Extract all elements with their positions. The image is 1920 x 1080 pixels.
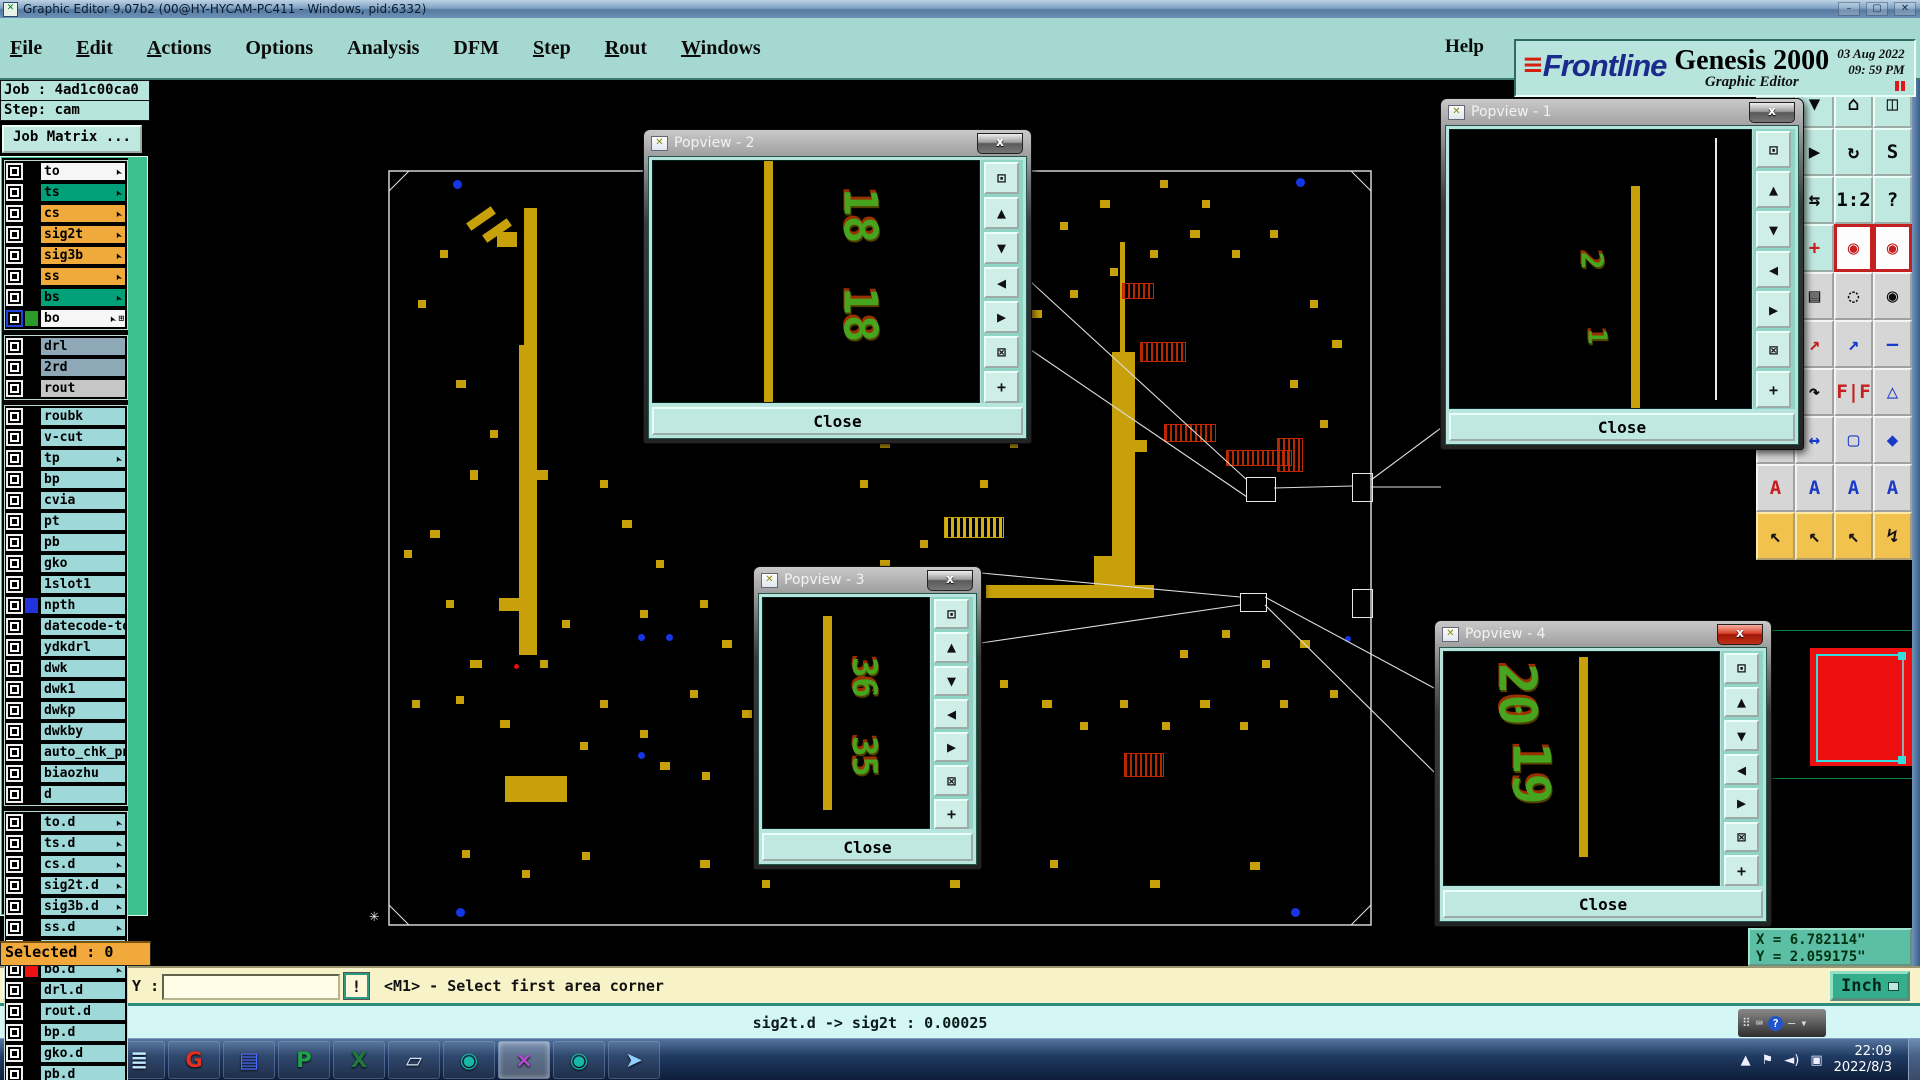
popview-tool-nudge-up[interactable]: ▲ — [934, 632, 969, 662]
layer-row-bp[interactable]: bp — [5, 469, 127, 490]
layer-name[interactable]: bp.d — [40, 1023, 126, 1042]
layer-checkbox[interactable] — [6, 982, 23, 999]
layer-name[interactable]: dwk — [40, 659, 126, 678]
popview-close-icon[interactable]: x — [977, 133, 1023, 154]
popview-tool-nudge-up[interactable]: ▲ — [984, 197, 1019, 229]
language-bar[interactable]: ⠿ ⌨ ? – ▾ — [1738, 1009, 1826, 1037]
layer-checkbox[interactable] — [6, 380, 23, 397]
layer-row-v-cut[interactable]: v-cut — [5, 427, 127, 448]
layer-checkbox[interactable] — [6, 681, 23, 698]
layer-color-swatch — [25, 472, 38, 487]
layer-name[interactable]: rout.d — [40, 1002, 126, 1021]
tool-scale-1-2[interactable]: 1:2 — [1834, 176, 1873, 224]
popview-tool-nudge-left[interactable]: ◀ — [1724, 754, 1759, 785]
popview-icon: ✕ — [761, 573, 778, 588]
popview-tool-popout[interactable]: ⊡ — [1756, 131, 1791, 168]
tool-net-2[interactable]: ◉ — [1873, 224, 1912, 272]
tool-cursor-1[interactable]: ↖ — [1756, 512, 1795, 560]
layer-checkbox[interactable] — [6, 184, 23, 201]
popview-tool-nudge-right[interactable]: ▶ — [1724, 788, 1759, 819]
popview-canvas[interactable]: 2019 — [1443, 651, 1720, 886]
layer-row-ss[interactable]: ss➤ — [5, 266, 127, 287]
tray-network-icon[interactable]: ▣ — [1810, 1053, 1822, 1068]
layer-name[interactable]: bo➤⊞ — [40, 309, 126, 328]
layer-name[interactable]: bp — [40, 470, 126, 489]
layer-color-swatch — [25, 381, 38, 396]
layer-checkbox[interactable] — [6, 555, 23, 572]
menu-actions[interactable]: Actions — [147, 37, 211, 60]
layer-color-swatch — [25, 248, 38, 263]
layer-checkbox[interactable] — [6, 639, 23, 656]
taskbar-floppy-app[interactable]: ▤ — [223, 1041, 275, 1079]
layer-checkbox[interactable] — [6, 919, 23, 936]
layer-name[interactable]: pb — [40, 533, 126, 552]
layer-checkbox[interactable] — [6, 226, 23, 243]
layer-name[interactable]: npth — [40, 596, 126, 615]
step-label: Step: cam — [0, 100, 150, 121]
xy-input[interactable] — [162, 974, 340, 1000]
taskbar-excel-app[interactable]: X — [333, 1041, 385, 1079]
layer-row-to.d[interactable]: to.d➤ — [5, 812, 127, 833]
popview-trace — [764, 161, 773, 402]
help-icon[interactable]: ? — [1768, 1016, 1783, 1031]
taskbar-p-app[interactable]: P — [278, 1041, 330, 1079]
layer-row-ts.d[interactable]: ts.d➤ — [5, 833, 127, 854]
layer-row-to[interactable]: to➤ — [5, 161, 127, 182]
pause-icon — [1895, 81, 1905, 91]
layer-row-biaozhu[interactable]: biaozhu — [5, 763, 127, 784]
layer-arrow-icon: ➤ — [112, 921, 126, 934]
layer-checkbox[interactable] — [6, 450, 23, 467]
layer-name[interactable]: cs➤ — [40, 204, 126, 223]
layer-name[interactable]: tp➤ — [40, 449, 126, 468]
layer-color-swatch — [25, 493, 38, 508]
tool-select-dot[interactable]: ◉ — [1873, 272, 1912, 320]
layer-name[interactable]: dwk1 — [40, 680, 126, 699]
layer-color-swatch — [25, 724, 38, 739]
layer-row-cs.d[interactable]: cs.d➤ — [5, 854, 127, 875]
popview-tool-nudge-down[interactable]: ▼ — [984, 232, 1019, 264]
layer-name[interactable]: cvia — [40, 491, 126, 510]
layer-row-gko[interactable]: gko — [5, 553, 127, 574]
layer-row-ts[interactable]: ts➤ — [5, 182, 127, 203]
popview-close-button[interactable]: Close — [1449, 413, 1795, 441]
popview-number: 1 — [1585, 328, 1608, 344]
taskbar-cam-app-1[interactable]: ◉ — [443, 1041, 495, 1079]
tool-shape-box[interactable]: ▢ — [1834, 416, 1873, 464]
layer-name[interactable]: ydkdrl — [40, 638, 126, 657]
popview-canvas[interactable]: 21 — [1449, 129, 1752, 409]
system-tray: ▲⚑◄)▣ 22:09 2022/8/3 — [1741, 1039, 1892, 1080]
popview-tool-nudge-left[interactable]: ◀ — [1756, 251, 1791, 288]
job-matrix-button[interactable]: Job Matrix ... — [2, 125, 142, 153]
layer-checkbox[interactable] — [6, 898, 23, 915]
layer-row-npth[interactable]: npth — [5, 595, 127, 616]
tool-peak-blue-1[interactable]: A — [1795, 464, 1834, 512]
minimize-button[interactable]: – — [1838, 2, 1860, 16]
popview-tool-popout[interactable]: ⊡ — [1724, 653, 1759, 684]
maximize-button[interactable]: ▢ — [1866, 2, 1888, 16]
layer-row-rout[interactable]: rout — [5, 378, 127, 399]
layer-color-swatch — [25, 836, 38, 851]
layer-row-drl[interactable]: drl — [5, 336, 127, 357]
layer-arrow-icon: ➤ — [112, 879, 126, 892]
date-label: 03 Aug 2022 — [1837, 46, 1904, 62]
popview-canvas[interactable]: 1818 — [652, 160, 980, 403]
layer-name[interactable]: datecode-to — [40, 617, 126, 636]
popview-tool-nudge-down[interactable]: ▼ — [934, 666, 969, 696]
layer-checkbox[interactable] — [6, 492, 23, 509]
popview-tool-zoom-fit[interactable]: ⊠ — [1724, 822, 1759, 853]
layer-name[interactable]: rout — [40, 379, 126, 398]
layer-name[interactable]: gko.d — [40, 1044, 126, 1063]
layer-color-swatch — [25, 311, 38, 326]
layer-row-dwkby[interactable]: dwkby — [5, 721, 127, 742]
layer-arrow-icon: ➤ — [112, 858, 126, 871]
layer-checkbox[interactable] — [6, 359, 23, 376]
tool-cursor-2[interactable]: ↖ — [1795, 512, 1834, 560]
units-button[interactable]: Inch — [1830, 971, 1910, 1001]
layer-name[interactable]: ts.d➤ — [40, 834, 126, 853]
layer-row-1slot1[interactable]: 1slot1 — [5, 574, 127, 595]
minimize-langbar-icon[interactable]: – — [1788, 1016, 1795, 1030]
menu-analysis[interactable]: Analysis — [347, 37, 419, 60]
popview-tool-nudge-right[interactable]: ▶ — [1756, 291, 1791, 328]
menu-file[interactable]: File — [10, 37, 42, 60]
tray-volume-icon[interactable]: ◄) — [1784, 1053, 1799, 1068]
layer-list: to➤ts➤cs➤sig2t➤sig3b➤ss➤bs➤bo➤⊞drl2rdrou… — [2, 158, 128, 914]
layer-name[interactable]: bs➤ — [40, 288, 126, 307]
layer-name[interactable]: d — [40, 785, 126, 804]
navigator-viewport[interactable] — [1816, 654, 1904, 762]
layer-name[interactable]: roubk — [40, 407, 126, 426]
coordinate-readout: X = 6.782114" Y = 2.059175" — [1748, 928, 1912, 966]
layer-checkbox[interactable] — [6, 814, 23, 831]
popview-titlebar[interactable]: ✕ Popview - 1 x — [1441, 99, 1803, 125]
brand-panel: ≡ Frontline Genesis 2000 Graphic Editor … — [1514, 39, 1916, 97]
frontline-stripes-icon: ≡ — [1522, 50, 1542, 80]
layer-color-swatch — [25, 682, 38, 697]
layer-name[interactable]: ts➤ — [40, 183, 126, 202]
layer-row-2rd[interactable]: 2rd — [5, 357, 127, 378]
layer-name[interactable]: to.d➤ — [40, 813, 126, 832]
popview-1-window[interactable]: ✕ Popview - 1 x 21 ⊡▲▼◀▶⊠+ Close — [1440, 98, 1804, 450]
layer-row-sig2t.d[interactable]: sig2t.d➤ — [5, 875, 127, 896]
popview-tool-nudge-right[interactable]: ▶ — [934, 732, 969, 762]
layer-color-swatch — [25, 983, 38, 998]
tool-peak-blue-2[interactable]: A — [1834, 464, 1873, 512]
layer-checkbox[interactable] — [6, 597, 23, 614]
layer-name[interactable]: pt — [40, 512, 126, 531]
layer-row-d[interactable]: d — [5, 784, 127, 805]
taskbar-cam-app-2[interactable]: ◉ — [553, 1041, 605, 1079]
layer-arrow-icon: ➤ — [112, 837, 126, 850]
layer-row-dwkp[interactable]: dwkp — [5, 700, 127, 721]
popview-canvas[interactable]: 3635 — [762, 597, 930, 829]
taskbar-apps: ✶≣G▤PX▱◉×◉➤ — [58, 1041, 660, 1079]
layer-color-swatch — [25, 535, 38, 550]
layer-checkbox[interactable] — [6, 513, 23, 530]
popview-tool-pan[interactable]: + — [984, 371, 1019, 403]
popview-3-window[interactable]: ✕ Popview - 3 x 3635 ⊡▲▼◀▶⊠+ Close — [753, 566, 982, 870]
layer-checkbox[interactable] — [6, 205, 23, 222]
navigator-gridline — [1756, 778, 1912, 779]
layer-row-dwk[interactable]: dwk — [5, 658, 127, 679]
popview-tool-pan[interactable]: + — [934, 799, 969, 829]
tool-move-blue[interactable]: ↗ — [1834, 320, 1873, 368]
popview-tool-nudge-down[interactable]: ▼ — [1724, 720, 1759, 751]
layer-name[interactable]: v-cut — [40, 428, 126, 447]
popview-tools: ⊡▲▼◀▶⊠+ — [1753, 129, 1795, 409]
popview-close-button[interactable]: Close — [762, 833, 973, 861]
layer-checkbox[interactable] — [6, 163, 23, 180]
layer-checkbox[interactable] — [6, 268, 23, 285]
layer-color-swatch — [25, 766, 38, 781]
layer-color-swatch — [25, 787, 38, 802]
taskbar-notepad-app[interactable]: ▱ — [388, 1041, 440, 1079]
layer-checkbox[interactable] — [6, 1045, 23, 1062]
layer-color-swatch — [25, 745, 38, 760]
layer-checkbox[interactable] — [6, 877, 23, 894]
tool-peak-red[interactable]: A — [1756, 464, 1795, 512]
layer-row-dwk1[interactable]: dwk1 — [5, 679, 127, 700]
layer-row-bs[interactable]: bs➤ — [5, 287, 127, 308]
layer-checkbox[interactable] — [6, 702, 23, 719]
tool-cursor-pentagon[interactable]: ↖ — [1834, 512, 1873, 560]
taskbar-feather-app[interactable]: ➤ — [608, 1041, 660, 1079]
layer-row-drl.d[interactable]: drl.d — [5, 980, 127, 1001]
layer-row-sig3b.d[interactable]: sig3b.d➤ — [5, 896, 127, 917]
layer-checkbox[interactable] — [6, 723, 23, 740]
tool-select-circle[interactable]: ◌ — [1834, 272, 1873, 320]
layer-checkbox[interactable] — [6, 744, 23, 761]
popview-edge-line — [1715, 138, 1717, 399]
layer-row-pb.d[interactable]: pb.d — [5, 1064, 127, 1080]
popview-title: Popview - 1 — [1471, 104, 1552, 120]
layer-row-cs[interactable]: cs➤ — [5, 203, 127, 224]
layer-row-ss.d[interactable]: ss.d➤ — [5, 917, 127, 938]
time-label: 09: 59 PM — [1848, 62, 1904, 78]
tool-help[interactable]: ? — [1873, 176, 1912, 224]
layer-checkbox[interactable] — [6, 576, 23, 593]
bang-button[interactable]: ! — [344, 973, 369, 999]
menu-step[interactable]: Step — [533, 37, 571, 60]
layer-name[interactable]: ss.d➤ — [40, 918, 126, 937]
product-name: Genesis 2000 — [1674, 48, 1829, 74]
popview-close-button[interactable]: Close — [1443, 890, 1763, 918]
menu-dfm[interactable]: DFM — [453, 37, 499, 60]
popview-tool-nudge-right[interactable]: ▶ — [984, 301, 1019, 333]
popview-titlebar[interactable]: ✕ Popview - 2 x — [644, 130, 1031, 156]
popview-2-window[interactable]: ✕ Popview - 2 x 1818 ⊡▲▼◀▶⊠+ Close — [643, 129, 1032, 444]
layer-checkbox[interactable] — [6, 471, 23, 488]
layer-checkbox[interactable] — [6, 289, 23, 306]
layer-checkbox[interactable] — [6, 534, 23, 551]
layer-name[interactable]: cs.d➤ — [40, 855, 126, 874]
popview-trace — [823, 616, 832, 809]
popview-icon: ✕ — [651, 136, 668, 151]
layer-checkbox[interactable] — [6, 618, 23, 635]
layer-row-tp[interactable]: tp➤ — [5, 448, 127, 469]
popview-close-button[interactable]: Close — [652, 407, 1023, 435]
popview-number: 35 — [848, 735, 879, 776]
tool-s-shape[interactable]: S — [1873, 128, 1912, 176]
layer-checkbox[interactable] — [6, 247, 23, 264]
layer-name[interactable]: gko — [40, 554, 126, 573]
taskbar-x-app[interactable]: × — [498, 1041, 550, 1079]
popview-tool-popout[interactable]: ⊡ — [984, 162, 1019, 194]
layer-checkbox[interactable] — [6, 338, 23, 355]
popview-number: 20 — [1493, 663, 1540, 726]
layer-row-datecode-to[interactable]: datecode-to — [5, 616, 127, 637]
layer-checkbox[interactable] — [6, 408, 23, 425]
layer-row-pb[interactable]: pb — [5, 532, 127, 553]
tool-triangle[interactable]: △ — [1873, 368, 1912, 416]
popview-number: 18 — [839, 188, 880, 243]
job-label: Job : 4ad1c00ca0 — [0, 80, 150, 101]
popview-close-icon[interactable]: x — [1717, 624, 1763, 645]
popview-tool-zoom-fit[interactable]: ⊠ — [934, 765, 969, 795]
coord-y: Y = 2.059175" — [1756, 949, 1910, 966]
overview-navigator[interactable] — [1756, 560, 1912, 928]
layer-color-swatch — [25, 514, 38, 529]
close-button[interactable]: ✕ — [1894, 2, 1916, 16]
taskbar-g-app[interactable]: G — [168, 1041, 220, 1079]
window-border — [1912, 18, 1920, 1038]
layer-name[interactable]: dwkp — [40, 701, 126, 720]
layer-checkbox[interactable] — [6, 429, 23, 446]
layer-color-swatch — [25, 227, 38, 242]
layer-row-gko.d[interactable]: gko.d — [5, 1043, 127, 1064]
tray-flag-icon[interactable]: ⚑ — [1762, 1053, 1774, 1068]
layer-name[interactable]: sig3b➤ — [40, 246, 126, 265]
layer-name[interactable]: sig2t➤ — [40, 225, 126, 244]
layer-name[interactable]: biaozhu — [40, 764, 126, 783]
layer-color-swatch — [25, 661, 38, 676]
popview-number: 36 — [848, 657, 879, 698]
layer-name[interactable]: 2rd — [40, 358, 126, 377]
popview-icon: ✕ — [1448, 105, 1465, 120]
menu-edit[interactable]: Edit — [76, 37, 113, 60]
layer-name[interactable]: ss➤ — [40, 267, 126, 286]
show-desktop-button[interactable] — [1908, 1039, 1920, 1080]
tool-cursor-route[interactable]: ↯ — [1873, 512, 1912, 560]
popview-tool-nudge-up[interactable]: ▲ — [1756, 171, 1791, 208]
layer-arrow-icon: ➤ — [112, 165, 126, 178]
layer-row-rout.d[interactable]: rout.d — [5, 1001, 127, 1022]
layer-checkbox[interactable] — [6, 1066, 23, 1080]
layer-name[interactable]: 1slot1 — [40, 575, 126, 594]
popview-close-icon[interactable]: x — [1749, 102, 1795, 123]
popview-tool-nudge-left[interactable]: ◀ — [984, 267, 1019, 299]
layer-panel: to➤ts➤cs➤sig2t➤sig3b➤ss➤bs➤bo➤⊞drl2rdrou… — [0, 156, 148, 916]
popview-close-icon[interactable]: x — [927, 570, 973, 591]
popview-tool-nudge-up[interactable]: ▲ — [1724, 687, 1759, 718]
tool-mirror[interactable]: F|F — [1834, 368, 1873, 416]
layer-arrow-icon: ➤ — [112, 270, 126, 283]
clock[interactable]: 22:09 2022/8/3 — [1834, 1044, 1892, 1076]
layer-checkbox[interactable] — [6, 1024, 23, 1041]
layer-name[interactable]: drl — [40, 337, 126, 356]
window-title: Graphic Editor 9.07b2 (00@HY-HYCAM-PC411… — [23, 2, 426, 16]
clock-time: 22:09 — [1855, 1044, 1892, 1060]
layer-row-auto_chk_pn[interactable]: auto_chk_pn — [5, 742, 127, 763]
layer-color-swatch — [25, 857, 38, 872]
layer-checkbox[interactable] — [6, 310, 23, 327]
menu-help[interactable]: Help — [1445, 36, 1484, 58]
tool-net-1[interactable]: ◉ — [1834, 224, 1873, 272]
status-bar: sig2t.d -> sig2t : 0.00025 ⠿ ⌨ ? – ▾ — [0, 1003, 1920, 1041]
layer-name[interactable]: dwkby — [40, 722, 126, 741]
layer-name[interactable]: sig3b.d➤ — [40, 897, 126, 916]
layer-checkbox[interactable] — [6, 786, 23, 803]
popview-tool-pan[interactable]: + — [1756, 371, 1791, 408]
popview-4-window[interactable]: ✕ Popview - 4 x 2019 ⊡▲▼◀▶⊠+ Close — [1434, 620, 1772, 927]
layer-sidebar: Job : 4ad1c00ca0 Step: cam Job Matrix ..… — [0, 78, 148, 966]
layer-color-swatch — [25, 339, 38, 354]
popview-tool-nudge-down[interactable]: ▼ — [1756, 211, 1791, 248]
popview-title: Popview - 3 — [784, 572, 865, 588]
layer-color-swatch — [25, 878, 38, 893]
menu-windows[interactable]: Windows — [681, 37, 761, 60]
tool-shapes[interactable]: ◆ — [1873, 416, 1912, 464]
layer-row-pt[interactable]: pt — [5, 511, 127, 532]
layer-color-swatch — [25, 409, 38, 424]
layer-row-ydkdrl[interactable]: ydkdrl — [5, 637, 127, 658]
layer-checkbox[interactable] — [6, 856, 23, 873]
layer-name[interactable]: auto_chk_pn — [40, 743, 126, 762]
popview-titlebar[interactable]: ✕ Popview - 3 x — [754, 567, 981, 593]
layer-arrow-icon: ➤ — [112, 900, 126, 913]
grip-icon: ⠿ — [1742, 1016, 1751, 1030]
layer-row-cvia[interactable]: cvia — [5, 490, 127, 511]
layer-checkbox[interactable] — [6, 765, 23, 782]
layer-name[interactable]: sig2t.d➤ — [40, 876, 126, 895]
tool-peak-blue-3[interactable]: A — [1873, 464, 1912, 512]
tray-expand-icon[interactable]: ▲ — [1741, 1053, 1751, 1068]
layer-row-bo[interactable]: bo➤⊞ — [5, 308, 127, 329]
tool-rotate[interactable]: ↻ — [1834, 128, 1873, 176]
popview-titlebar[interactable]: ✕ Popview - 4 x — [1435, 621, 1771, 647]
layer-checkbox[interactable] — [6, 660, 23, 677]
layer-color-swatch — [25, 269, 38, 284]
layer-name[interactable]: to➤ — [40, 162, 126, 181]
expand-langbar-icon[interactable]: ▾ — [1800, 1016, 1807, 1030]
popview-number: 18 — [839, 287, 880, 342]
popview-tool-popout[interactable]: ⊡ — [934, 599, 969, 629]
layer-color-swatch — [25, 1004, 38, 1019]
keyboard-icon[interactable]: ⌨ — [1756, 1016, 1763, 1030]
layer-checkbox[interactable] — [6, 1003, 23, 1020]
menu-options[interactable]: Options — [245, 37, 313, 60]
popview-tool-zoom-fit[interactable]: ⊠ — [984, 336, 1019, 368]
layer-row-bp.d[interactable]: bp.d — [5, 1022, 127, 1043]
layer-name[interactable]: pb.d — [40, 1065, 126, 1080]
layer-row-sig2t[interactable]: sig2t➤ — [5, 224, 127, 245]
layer-checkbox[interactable] — [6, 835, 23, 852]
layer-row-roubk[interactable]: roubk — [5, 406, 127, 427]
menu-rout[interactable]: Rout — [605, 37, 647, 60]
tool-line-blue[interactable]: — — [1873, 320, 1912, 368]
layer-arrow-icon: ➤ — [112, 816, 126, 829]
layer-row-sig3b[interactable]: sig3b➤ — [5, 245, 127, 266]
app-icon: ✕ — [3, 2, 18, 17]
layer-name[interactable]: drl.d — [40, 981, 126, 1000]
popview-tool-zoom-fit[interactable]: ⊠ — [1756, 331, 1791, 368]
layer-color-swatch — [25, 577, 38, 592]
popview-tool-nudge-left[interactable]: ◀ — [934, 699, 969, 729]
popview-tool-pan[interactable]: + — [1724, 855, 1759, 886]
